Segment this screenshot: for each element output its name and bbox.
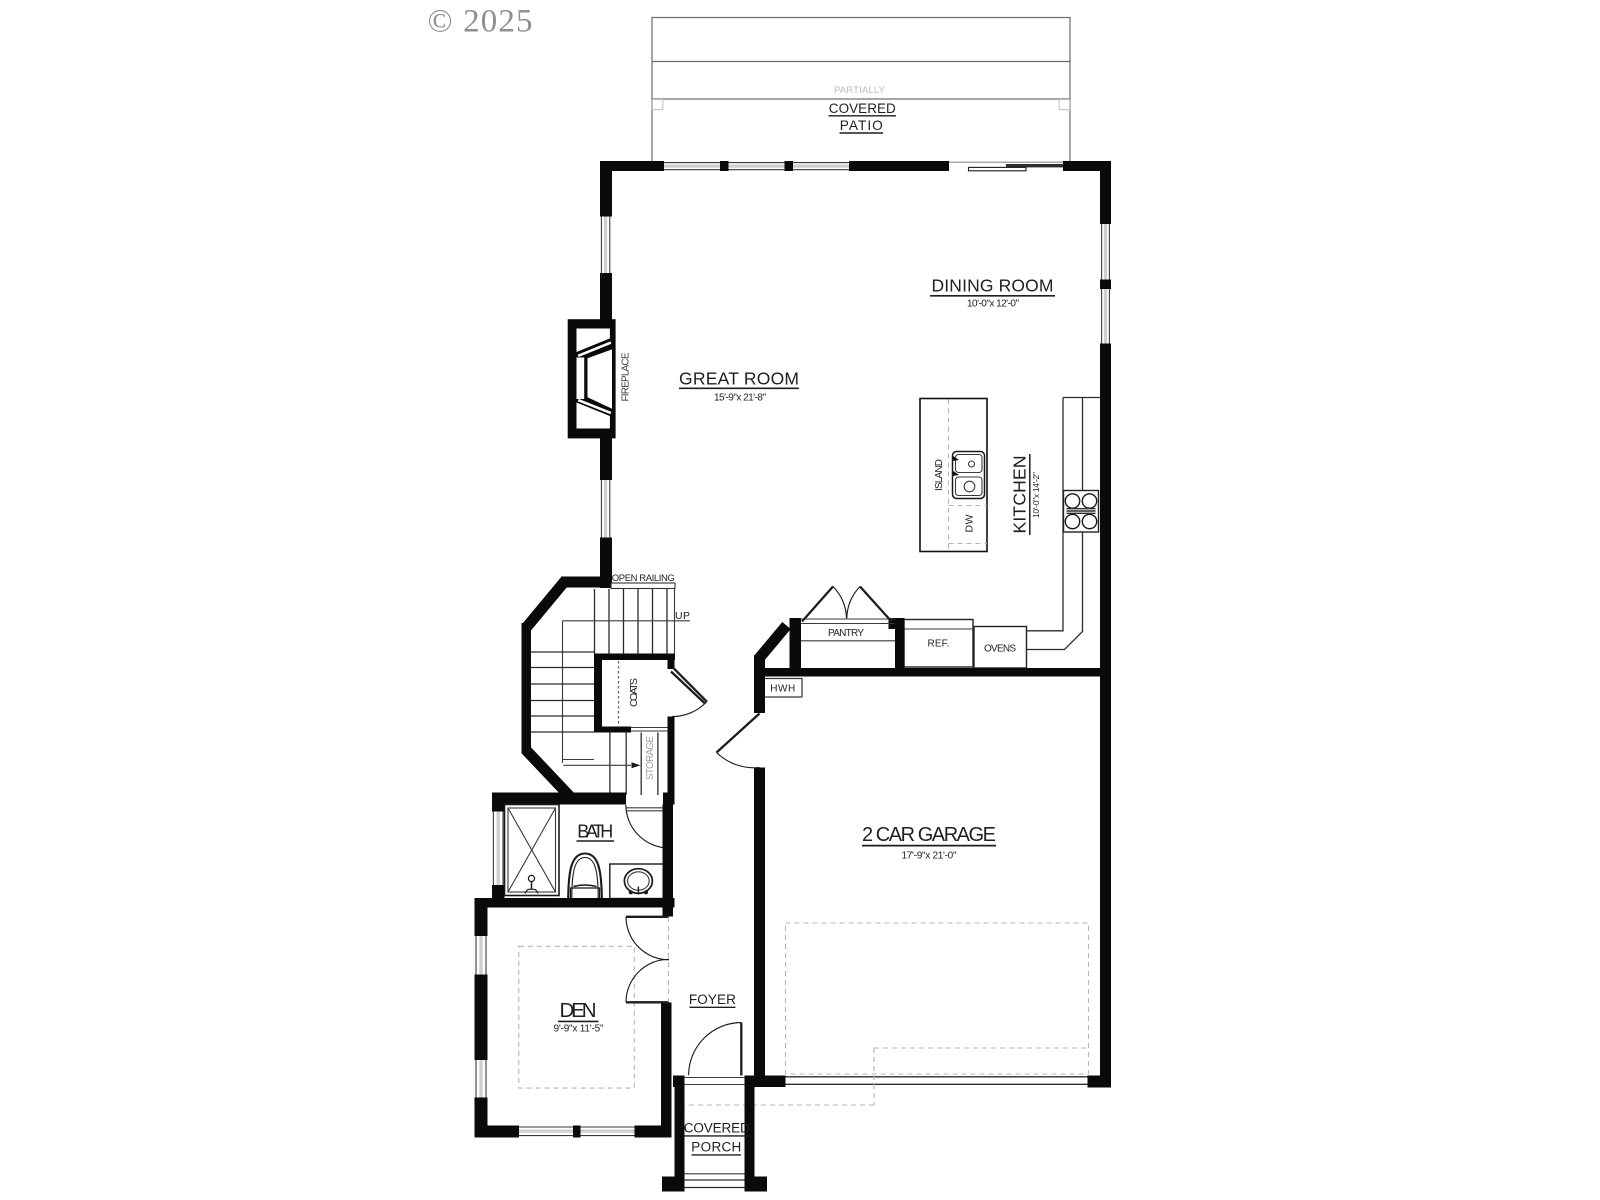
svg-text:COATS: COATS xyxy=(628,678,640,707)
svg-text:UP: UP xyxy=(675,610,690,622)
svg-text:OVENS: OVENS xyxy=(984,644,1016,655)
svg-text:FIREPLACE: FIREPLACE xyxy=(620,352,631,401)
svg-text:HWH: HWH xyxy=(770,684,795,695)
svg-text:DEN: DEN xyxy=(560,999,597,1022)
svg-text:17'-9"x 21'-0": 17'-9"x 21'-0" xyxy=(902,851,957,862)
svg-text:10'-0"x 14'-2": 10'-0"x 14'-2" xyxy=(1031,472,1041,518)
svg-text:© 2025: © 2025 xyxy=(428,4,533,40)
svg-text:COVERED: COVERED xyxy=(829,101,896,116)
svg-text:10'-0"x 12'-0": 10'-0"x 12'-0" xyxy=(967,298,1019,309)
svg-text:2 CAR GARAGE: 2 CAR GARAGE xyxy=(862,824,996,846)
svg-text:15'-9"x 21'-8": 15'-9"x 21'-8" xyxy=(714,392,766,403)
svg-text:DW: DW xyxy=(964,514,976,532)
svg-text:PATIO: PATIO xyxy=(840,118,883,133)
svg-text:PARTIALLY: PARTIALLY xyxy=(834,85,886,96)
svg-text:9'-9"x 11'-5": 9'-9"x 11'-5" xyxy=(554,1024,604,1035)
svg-text:REF.: REF. xyxy=(928,639,950,650)
svg-text:ISLAND: ISLAND xyxy=(934,459,945,491)
svg-text:PORCH: PORCH xyxy=(691,1140,741,1155)
svg-text:FOYER: FOYER xyxy=(689,992,736,1007)
svg-text:DINING ROOM: DINING ROOM xyxy=(932,275,1054,295)
svg-text:GREAT ROOM: GREAT ROOM xyxy=(679,368,799,388)
svg-text:OPEN RAILING: OPEN RAILING xyxy=(612,573,675,584)
svg-text:KITCHEN: KITCHEN xyxy=(1010,456,1030,534)
svg-text:PANTRY: PANTRY xyxy=(828,628,864,639)
svg-text:BATH: BATH xyxy=(577,822,613,842)
svg-text:STORAGE: STORAGE xyxy=(645,736,656,780)
svg-text:COVERED: COVERED xyxy=(684,1121,750,1136)
